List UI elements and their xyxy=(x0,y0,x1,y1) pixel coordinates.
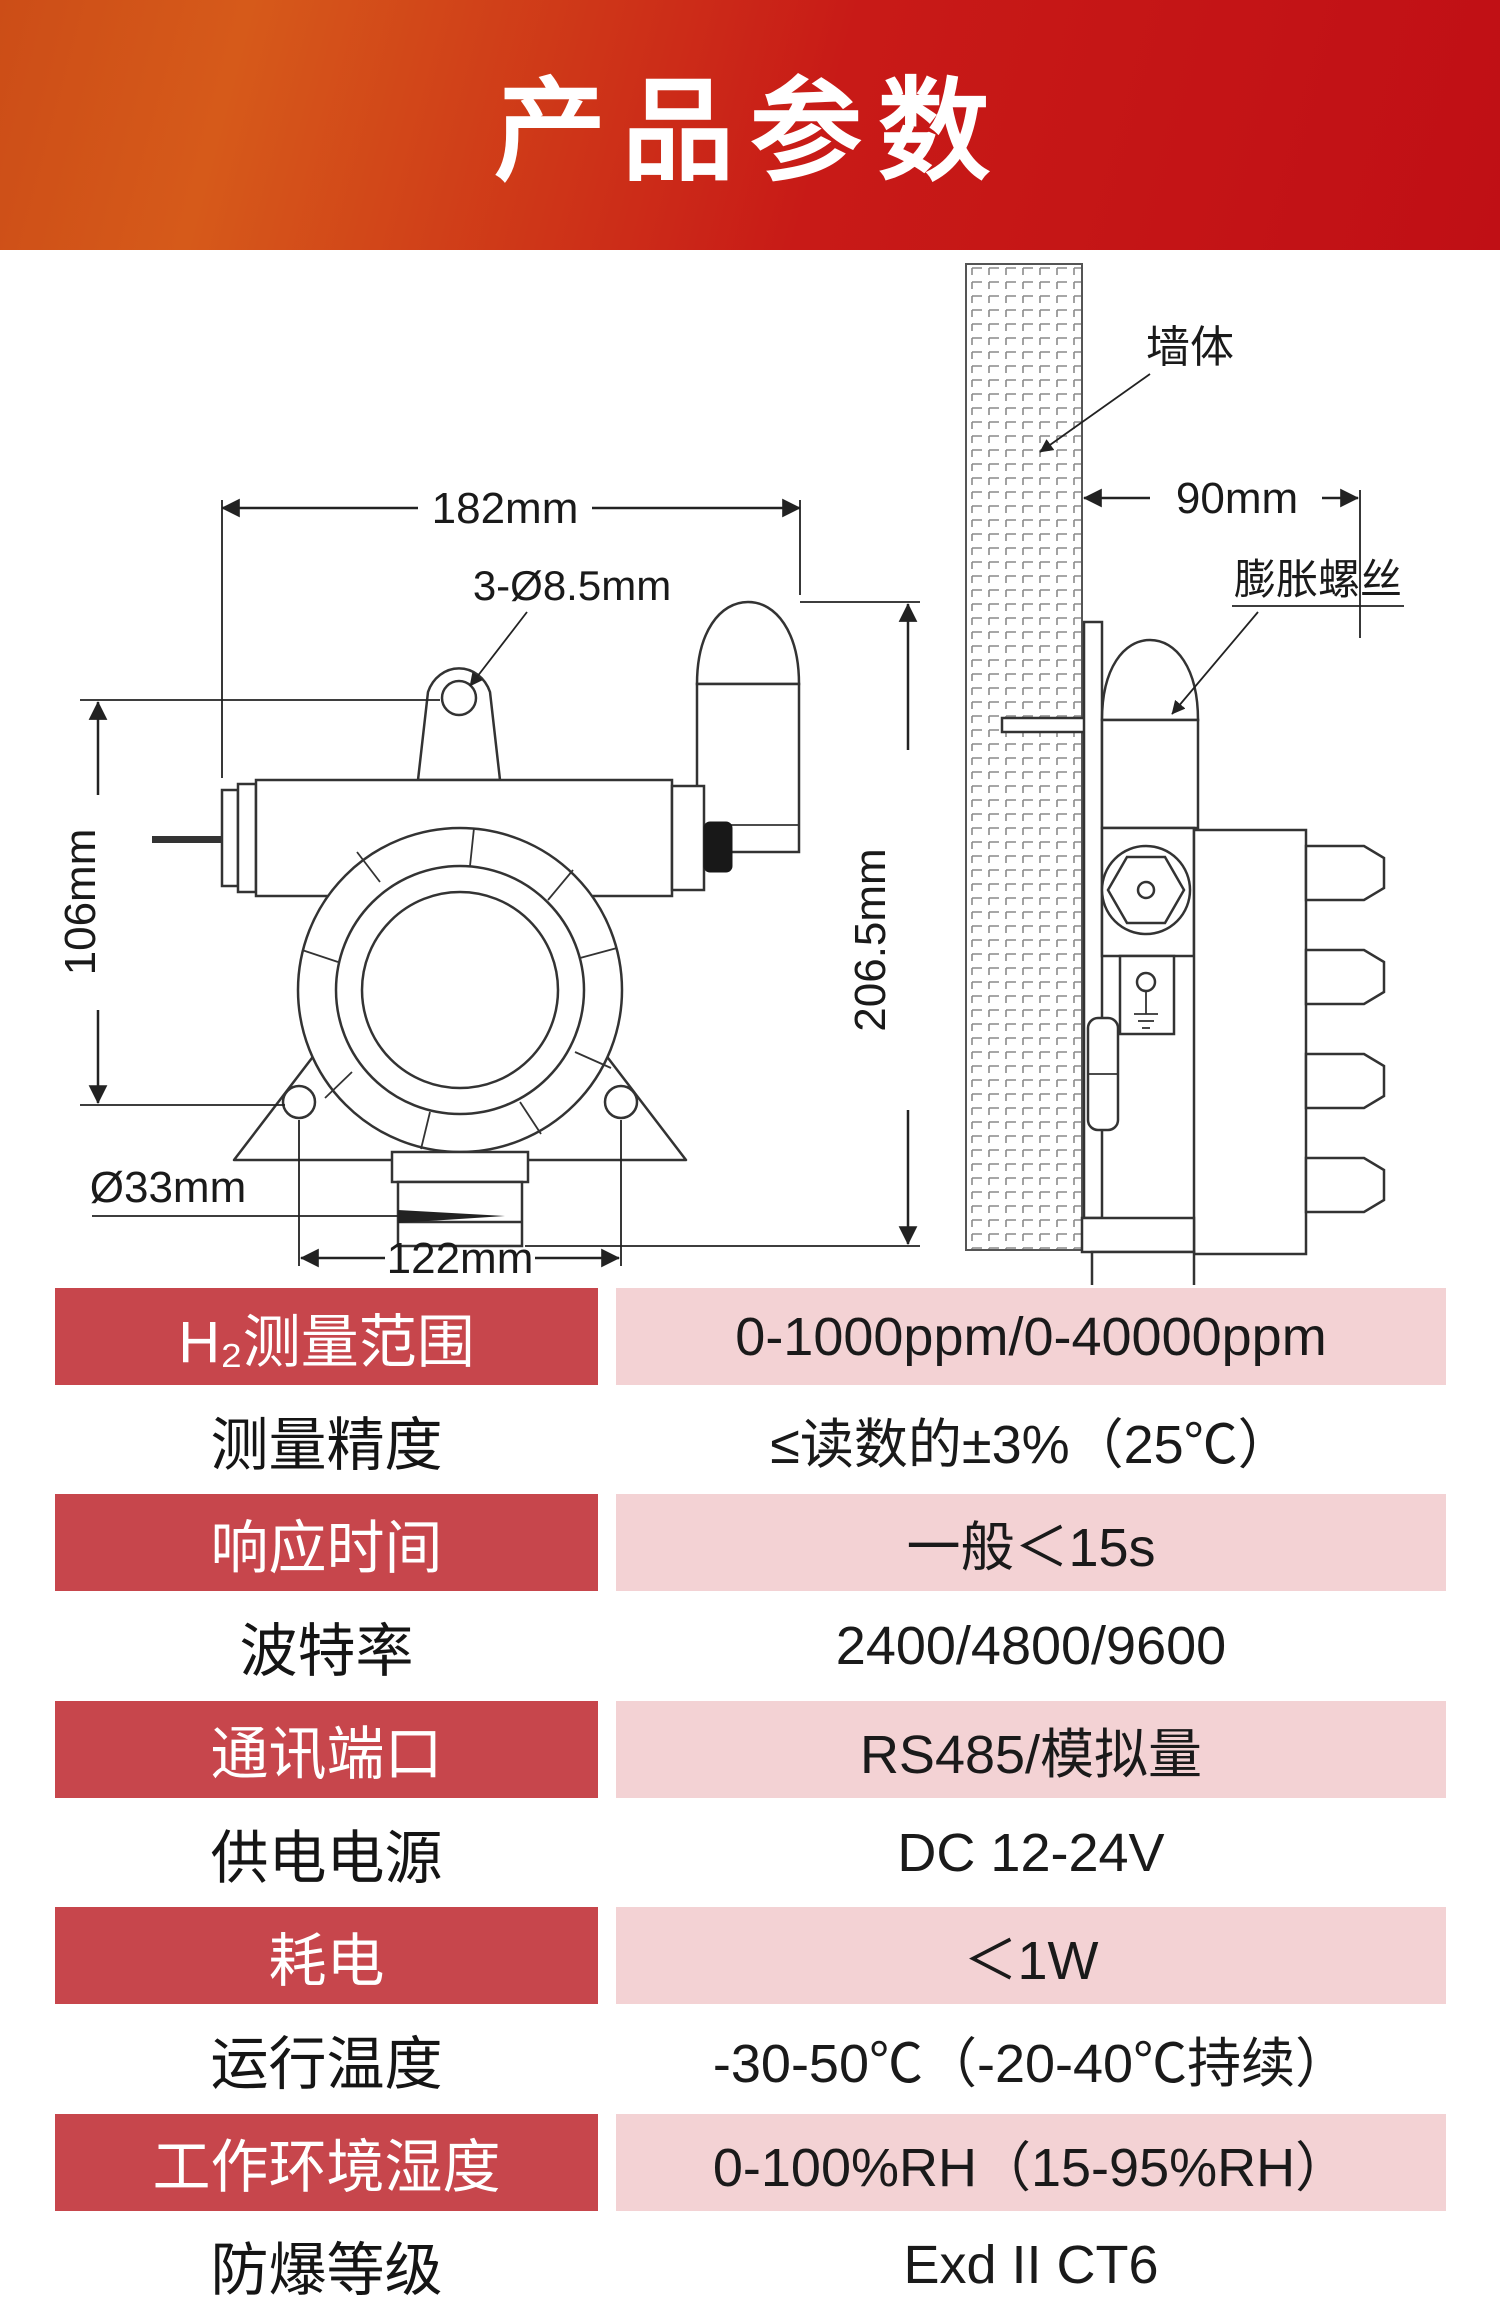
spec-table: H₂测量范围 0-1000ppm/0-40000ppm 测量精度 ≤读数的±3%… xyxy=(0,1285,1500,2317)
front-view-drawing xyxy=(152,602,799,1246)
housing-lens xyxy=(362,892,558,1088)
table-row: 响应时间 一般＜15s xyxy=(0,1491,1500,1594)
side-housing xyxy=(1194,830,1306,1254)
spec-value-humidity: 0-100%RH（15-95%RH） xyxy=(616,2114,1446,2211)
spec-value-explosion-proof: Exd II CT6 xyxy=(616,2217,1446,2314)
dim-spacing-122: 122mm xyxy=(387,1234,534,1283)
spec-label-measure-range: H₂测量范围 xyxy=(55,1288,598,1385)
label-anchor-bolt: 膨胀螺丝 xyxy=(1234,556,1402,603)
wall xyxy=(966,264,1082,1250)
table-row: 测量精度 ≤读数的±3%（25℃） xyxy=(0,1388,1500,1491)
alarm-dome xyxy=(697,602,799,684)
spec-value-accuracy: ≤读数的±3%（25℃） xyxy=(616,1391,1446,1488)
dim-depth-90: 90mm xyxy=(1176,474,1298,523)
cable-gland xyxy=(704,822,732,872)
header-banner: 产品参数 xyxy=(0,0,1500,250)
label-wall: 墙体 xyxy=(1146,323,1234,372)
spec-value-measure-range: 0-1000ppm/0-40000ppm xyxy=(616,1288,1446,1385)
table-row: 波特率 2400/4800/9600 xyxy=(0,1595,1500,1698)
mount-hole-left xyxy=(283,1086,315,1118)
spec-value-power-consumption: ＜1W xyxy=(616,1907,1446,2004)
dim-height-106: 106mm xyxy=(56,829,105,976)
spec-value-response-time: 一般＜15s xyxy=(616,1494,1446,1591)
table-row: 供电电源 DC 12-24V xyxy=(0,1801,1500,1904)
dim-holes-85: 3-Ø8.5mm xyxy=(473,562,671,609)
technical-diagram: 182mm 3-Ø8.5mm 106mm 206.5mm Ø33mm 122mm xyxy=(0,250,1500,1285)
page-title: 产品参数 xyxy=(494,41,1006,203)
side-view-drawing xyxy=(966,264,1384,1285)
table-row: H₂测量范围 0-1000ppm/0-40000ppm xyxy=(0,1285,1500,1388)
spec-label-response-time: 响应时间 xyxy=(55,1494,598,1591)
antenna-probe xyxy=(152,836,222,843)
table-row: 运行温度 -30-50℃（-20-40℃持续） xyxy=(0,2007,1500,2110)
spec-value-operating-temp: -30-50℃（-20-40℃持续） xyxy=(616,2010,1446,2107)
spec-value-baud-rate: 2400/4800/9600 xyxy=(616,1598,1446,1695)
spec-label-explosion-proof: 防爆等级 xyxy=(55,2217,598,2314)
mount-hole-right xyxy=(605,1086,637,1118)
table-row: 防爆等级 Exd II CT6 xyxy=(0,2214,1500,2317)
spec-value-power-supply: DC 12-24V xyxy=(616,1804,1446,1901)
spec-label-comm-port: 通讯端口 xyxy=(55,1701,598,1798)
spec-label-operating-temp: 运行温度 xyxy=(55,2010,598,2107)
dim-height-2065: 206.5mm xyxy=(846,848,895,1031)
spec-label-baud-rate: 波特率 xyxy=(55,1598,598,1695)
table-row: 通讯端口 RS485/模拟量 xyxy=(0,1698,1500,1801)
spec-label-power-consumption: 耗电 xyxy=(55,1907,598,2004)
dim-width-182: 182mm xyxy=(432,484,579,533)
spec-label-accuracy: 测量精度 xyxy=(55,1391,598,1488)
spec-label-power-supply: 供电电源 xyxy=(55,1804,598,1901)
table-row: 工作环境湿度 0-100%RH（15-95%RH） xyxy=(0,2111,1500,2214)
spec-label-humidity: 工作环境湿度 xyxy=(55,2114,598,2211)
side-sensor-cylinder xyxy=(1092,1252,1194,1285)
table-row: 耗电 ＜1W xyxy=(0,1904,1500,2007)
dim-diameter-33: Ø33mm xyxy=(90,1163,246,1212)
spec-value-comm-port: RS485/模拟量 xyxy=(616,1701,1446,1798)
